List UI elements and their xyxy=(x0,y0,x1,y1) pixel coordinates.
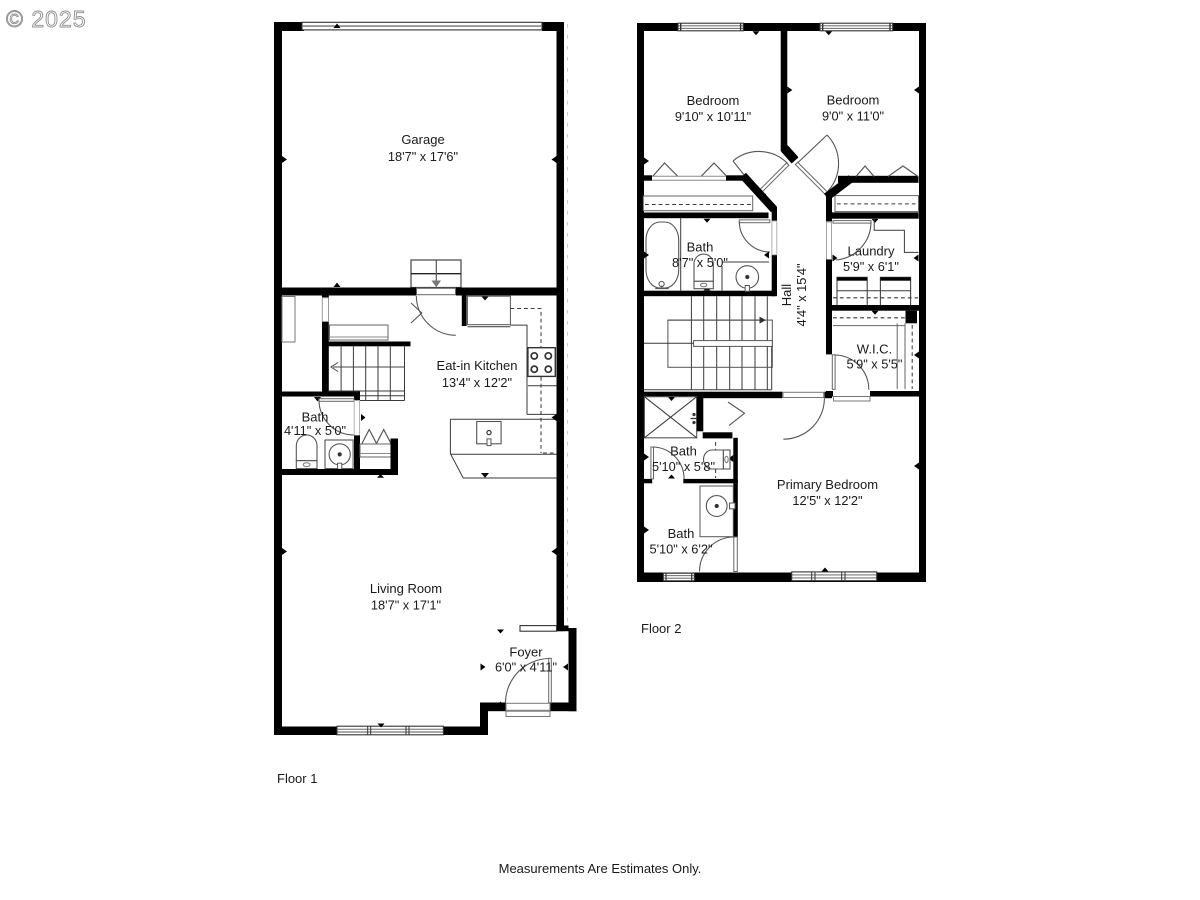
svg-text:Bedroom: Bedroom xyxy=(827,93,880,108)
svg-text:Bath: Bath xyxy=(670,444,697,459)
svg-text:Foyer: Foyer xyxy=(509,645,543,660)
svg-text:Measurements Are Estimates Onl: Measurements Are Estimates Only. xyxy=(499,861,702,876)
svg-text:Laundry: Laundry xyxy=(848,244,895,259)
svg-text:Floor 1: Floor 1 xyxy=(277,771,317,786)
svg-text:13'4" x 12'2": 13'4" x 12'2" xyxy=(442,375,512,390)
svg-text:5'9" x 6'1": 5'9" x 6'1" xyxy=(843,259,899,274)
svg-text:18'7" x 17'1": 18'7" x 17'1" xyxy=(371,598,441,613)
svg-text:Eat-in Kitchen: Eat-in Kitchen xyxy=(437,358,518,373)
svg-text:Garage: Garage xyxy=(401,132,444,147)
svg-text:Hall: Hall xyxy=(779,284,794,307)
svg-text:5'10" x 5'8": 5'10" x 5'8" xyxy=(652,459,715,474)
svg-text:Bath: Bath xyxy=(687,240,714,255)
svg-text:Primary Bedroom: Primary Bedroom xyxy=(777,477,878,492)
svg-text:6'0" x 4'11": 6'0" x 4'11" xyxy=(495,660,557,675)
svg-text:W.I.C.: W.I.C. xyxy=(857,342,892,357)
svg-text:Bath: Bath xyxy=(668,526,695,541)
svg-text:4'4" x 15'4": 4'4" x 15'4" xyxy=(794,263,809,326)
svg-text:5'9" x 5'5": 5'9" x 5'5" xyxy=(847,357,903,372)
svg-text:5'10" x 6'2": 5'10" x 6'2" xyxy=(649,542,712,557)
svg-text:18'7" x 17'6": 18'7" x 17'6" xyxy=(388,149,458,164)
svg-text:9'0" x 11'0": 9'0" x 11'0" xyxy=(822,109,884,124)
svg-text:4'11" x 5'0": 4'11" x 5'0" xyxy=(284,423,346,438)
svg-text:9'10" x 10'11": 9'10" x 10'11" xyxy=(675,109,751,124)
svg-text:© 2025: © 2025 xyxy=(6,6,87,32)
svg-text:Floor 2: Floor 2 xyxy=(641,621,681,636)
svg-text:12'5" x 12'2": 12'5" x 12'2" xyxy=(792,493,862,508)
svg-text:8'7" x 5'0": 8'7" x 5'0" xyxy=(672,255,728,270)
svg-text:Bedroom: Bedroom xyxy=(687,93,740,108)
svg-text:Living Room: Living Room xyxy=(370,581,442,596)
